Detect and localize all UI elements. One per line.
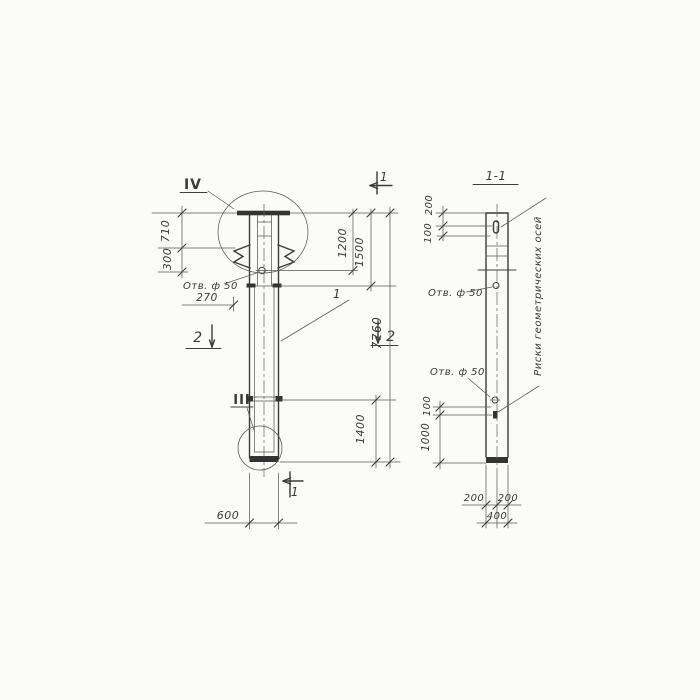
hole-note-main: Отв. ф 50 [183,273,258,293]
section-cut-top-label: 1 [380,170,388,184]
axes-note-text: Риски геометрических осей [533,216,544,376]
position-label: 1 [281,287,349,341]
detail-marker-bottom-label: III [233,393,251,408]
dim-400: 400 [487,511,508,522]
hole-note-upper-group: Отв. ф 50 [428,287,492,299]
hole-note-lower-group: Отв. ф 50 [430,367,490,397]
corbel-right [278,245,294,268]
corbel-left [234,245,250,268]
detail-circle-bottom [238,426,282,470]
position-label-text: 1 [333,287,341,301]
section-view: 1-1 [420,169,546,528]
section-title: 1-1 [473,169,518,185]
head-socket [258,215,272,286]
technical-drawing-column-elevation: IV III 1 1 2 [0,0,700,700]
section-cut-mark-top: 1 [370,170,392,194]
hole-upper-section [493,283,499,289]
hole-lower-section [490,397,500,403]
hole-note-main-text: Отв. ф 50 [183,281,238,292]
top-plate [237,211,290,216]
dim-100-top: 100 [423,223,434,244]
dim-200-right: 200 [498,493,519,504]
dim-7760: 7760 [370,317,384,350]
axes-note-group: Риски геометрических осей [498,198,546,412]
section-cut-left-label: 2 [193,330,202,346]
dim-710: 710 [159,220,172,243]
dim-1200: 1200 [336,228,349,258]
section-lower-dims: 100 1000 [420,396,492,469]
dim-100-mid: 100 [422,396,433,417]
hole-note-upper-text: Отв. ф 50 [428,288,483,299]
left-dimension-chain: 710 300 [158,206,235,278]
dim-200-top: 200 [424,195,435,216]
dim-300: 300 [161,248,174,271]
dim-270-group: 270 [182,292,238,311]
main-view: IV III 1 1 2 [152,170,400,529]
axis-mark-lower [493,411,498,419]
dim-1000: 1000 [420,423,432,452]
section-cut-bottom-label: 1 [291,485,299,499]
dim-270: 270 [196,292,218,304]
section-upper-dims: 200 100 [423,195,492,244]
detail-marker-top-label: IV [184,177,202,193]
detail-marker-top: IV [180,177,234,209]
section-cut-right-label: 2 [386,329,395,345]
dim-200-left: 200 [464,493,485,504]
detail-marker-bottom: III [231,393,254,430]
section-cut-mark-bottom: 1 [283,472,303,499]
dim-1500: 1500 [353,237,366,267]
section-title-text: 1-1 [485,169,506,183]
dim-1400: 1400 [354,414,367,444]
section-bottom-dims: 200 200 400 [462,465,521,528]
hole-note-lower-text: Отв. ф 50 [430,367,485,378]
section-cut-mark-left: 2 [186,325,221,349]
column-bottom-tip [250,456,279,462]
axis-slot-mark-top [494,221,499,233]
detail-circle-top [218,191,308,273]
dim-600: 600 [217,509,240,522]
